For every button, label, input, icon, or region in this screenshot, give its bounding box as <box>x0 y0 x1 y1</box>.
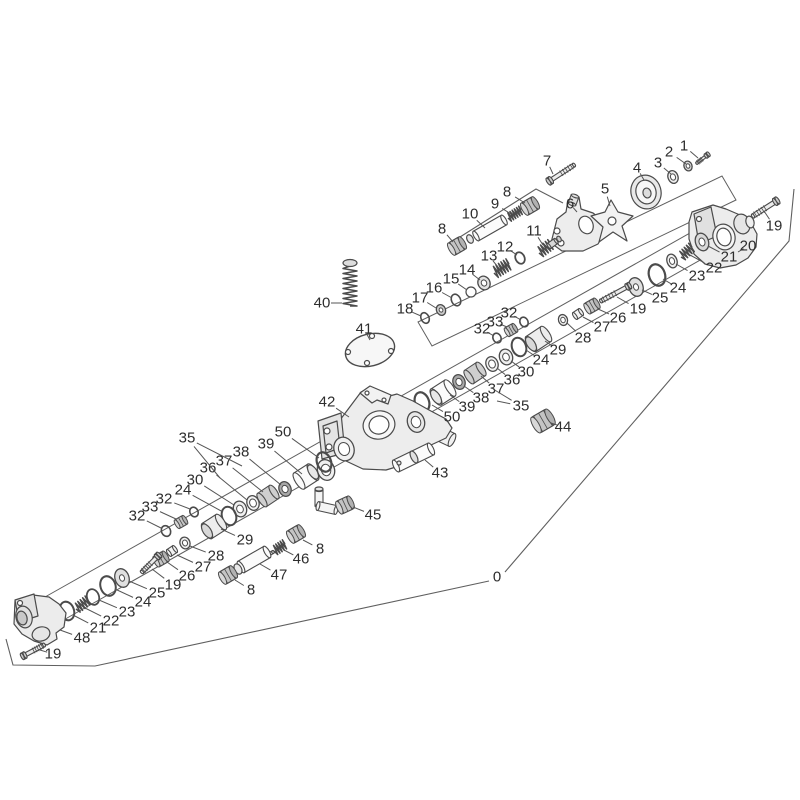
callout-leader <box>676 264 688 271</box>
part-callout-6: 6 <box>566 196 574 213</box>
part-callout-29: 29 <box>237 532 254 549</box>
part-ring <box>343 260 357 267</box>
part-callout-46: 46 <box>293 551 310 568</box>
part-callout-15: 15 <box>443 271 460 288</box>
part-callout-36: 36 <box>504 372 521 389</box>
part-callout-40: 40 <box>314 295 331 312</box>
part-callout-50: 50 <box>275 424 292 441</box>
part-callout-24: 24 <box>533 352 550 369</box>
callout-leader <box>677 157 686 164</box>
part-callout-7: 7 <box>543 153 551 170</box>
callout-leader <box>85 608 101 616</box>
part-callout-24: 24 <box>135 594 152 611</box>
part-plug <box>503 323 519 338</box>
part-callout-26: 26 <box>610 310 627 327</box>
part-callout-22: 22 <box>706 260 723 277</box>
part-callout-50: 50 <box>444 409 461 426</box>
callout-leader <box>412 312 421 316</box>
callout-leader <box>353 507 364 511</box>
part-callout-29: 29 <box>550 342 567 359</box>
part-callout-39: 39 <box>459 399 476 416</box>
part-callout-35: 35 <box>179 430 196 447</box>
callout-leader <box>167 562 178 570</box>
part-callout-28: 28 <box>575 330 592 347</box>
part-ring <box>419 311 431 324</box>
callout-leader <box>497 401 510 404</box>
part-callout-19: 19 <box>766 218 783 235</box>
callout-leader <box>260 564 270 570</box>
part-ball <box>365 391 369 395</box>
part-ball <box>382 398 386 402</box>
part-ball <box>697 217 702 222</box>
part-ball <box>608 217 616 225</box>
part-callout-2: 2 <box>665 144 673 161</box>
part-callout-4: 4 <box>633 160 641 177</box>
part-callout-48: 48 <box>74 630 91 647</box>
part-callout-19: 19 <box>630 301 647 318</box>
callout-leader <box>447 235 453 242</box>
part-ring <box>315 487 323 491</box>
part-ball <box>365 361 370 366</box>
callout-leader <box>221 529 235 535</box>
part-callout-3: 3 <box>654 155 662 172</box>
part-callout-18: 18 <box>397 301 414 318</box>
part-callout-38: 38 <box>233 444 250 461</box>
part-callout-19: 19 <box>165 577 182 594</box>
part-callout-39: 39 <box>258 436 275 453</box>
part-callout-21: 21 <box>721 249 738 266</box>
part-plug <box>583 297 602 315</box>
diagram-svg: 1234567891081112131415161718192021222324… <box>0 0 800 800</box>
callout-leader <box>60 630 72 634</box>
part-callout-25: 25 <box>652 290 669 307</box>
part-callout-32: 32 <box>474 321 491 338</box>
part-callout-45: 45 <box>365 507 382 524</box>
callout-leader <box>458 284 467 290</box>
part-callout-23: 23 <box>689 268 706 285</box>
part-callout-44: 44 <box>555 419 572 436</box>
part-callout-21: 21 <box>90 620 107 637</box>
callout-leader <box>152 569 164 578</box>
part-callout-12: 12 <box>497 239 514 256</box>
part-ball <box>18 601 23 606</box>
part-ball <box>397 461 401 465</box>
part-callout-0: 0 <box>493 569 501 586</box>
callout-leader <box>303 540 312 545</box>
callout-leader <box>129 581 147 589</box>
part-callout-14: 14 <box>459 262 476 279</box>
part-ball <box>346 350 351 355</box>
callout-leader <box>617 297 629 304</box>
part-plug <box>446 236 468 257</box>
part-callout-9: 9 <box>491 196 499 213</box>
callout-leader <box>515 197 525 203</box>
part-callout-13: 13 <box>481 248 498 265</box>
part-ring <box>491 332 502 344</box>
part-callout-19: 19 <box>45 646 62 663</box>
part-callout-47: 47 <box>271 567 288 584</box>
part-callout-32: 32 <box>129 508 146 525</box>
part-callout-43: 43 <box>432 465 449 482</box>
part-ball <box>554 228 560 234</box>
callout-leader <box>583 317 593 323</box>
part-ring <box>513 251 526 266</box>
part-plug <box>285 524 307 545</box>
part-callout-8: 8 <box>503 184 511 201</box>
part-ring <box>518 316 529 328</box>
part-ball <box>466 287 476 297</box>
callout-leader <box>147 521 161 528</box>
part-callout-5: 5 <box>601 181 609 198</box>
callout-leader <box>690 151 698 158</box>
part-callout-42: 42 <box>319 394 336 411</box>
part-callout-27: 27 <box>195 559 212 576</box>
part-spring <box>274 540 287 555</box>
callout-leader <box>204 486 234 505</box>
callout-leader <box>427 303 436 309</box>
part-plug <box>529 408 557 435</box>
part-callout-1: 1 <box>680 138 688 155</box>
part-callout-24: 24 <box>175 482 192 499</box>
part-callout-27: 27 <box>594 319 611 336</box>
callout-leader <box>73 615 88 623</box>
callout-leader <box>598 309 609 314</box>
part-callout-17: 17 <box>412 290 429 307</box>
part-callout-8: 8 <box>247 582 255 599</box>
part-ball <box>324 428 330 434</box>
callout-leader <box>99 600 117 608</box>
part-callout-10: 10 <box>462 206 479 223</box>
part-callout-37: 37 <box>216 453 233 470</box>
part-callout-11: 11 <box>526 223 542 240</box>
part-callout-8: 8 <box>316 541 324 558</box>
callout-leader <box>160 512 176 519</box>
part-callout-20: 20 <box>740 238 757 255</box>
callout-leader <box>235 580 244 586</box>
part-ring <box>188 506 199 518</box>
part-callout-41: 41 <box>356 321 373 338</box>
callout-leader <box>190 546 206 552</box>
part-callout-35: 35 <box>513 398 530 415</box>
callout-leader <box>174 503 190 509</box>
part-callout-24: 24 <box>670 280 687 297</box>
part-ball <box>326 444 332 450</box>
part-spring <box>343 266 357 306</box>
callout-leader <box>177 555 193 562</box>
part-callout-23: 23 <box>119 604 136 621</box>
part-ball <box>389 349 394 354</box>
callout-leader <box>442 293 452 299</box>
part-callout-8: 8 <box>438 221 446 238</box>
part-ring <box>449 293 462 308</box>
exploded-parts-diagram: 1234567891081112131415161718192021222324… <box>0 0 800 800</box>
callout-leader <box>249 459 281 485</box>
callout-leader <box>115 589 133 597</box>
